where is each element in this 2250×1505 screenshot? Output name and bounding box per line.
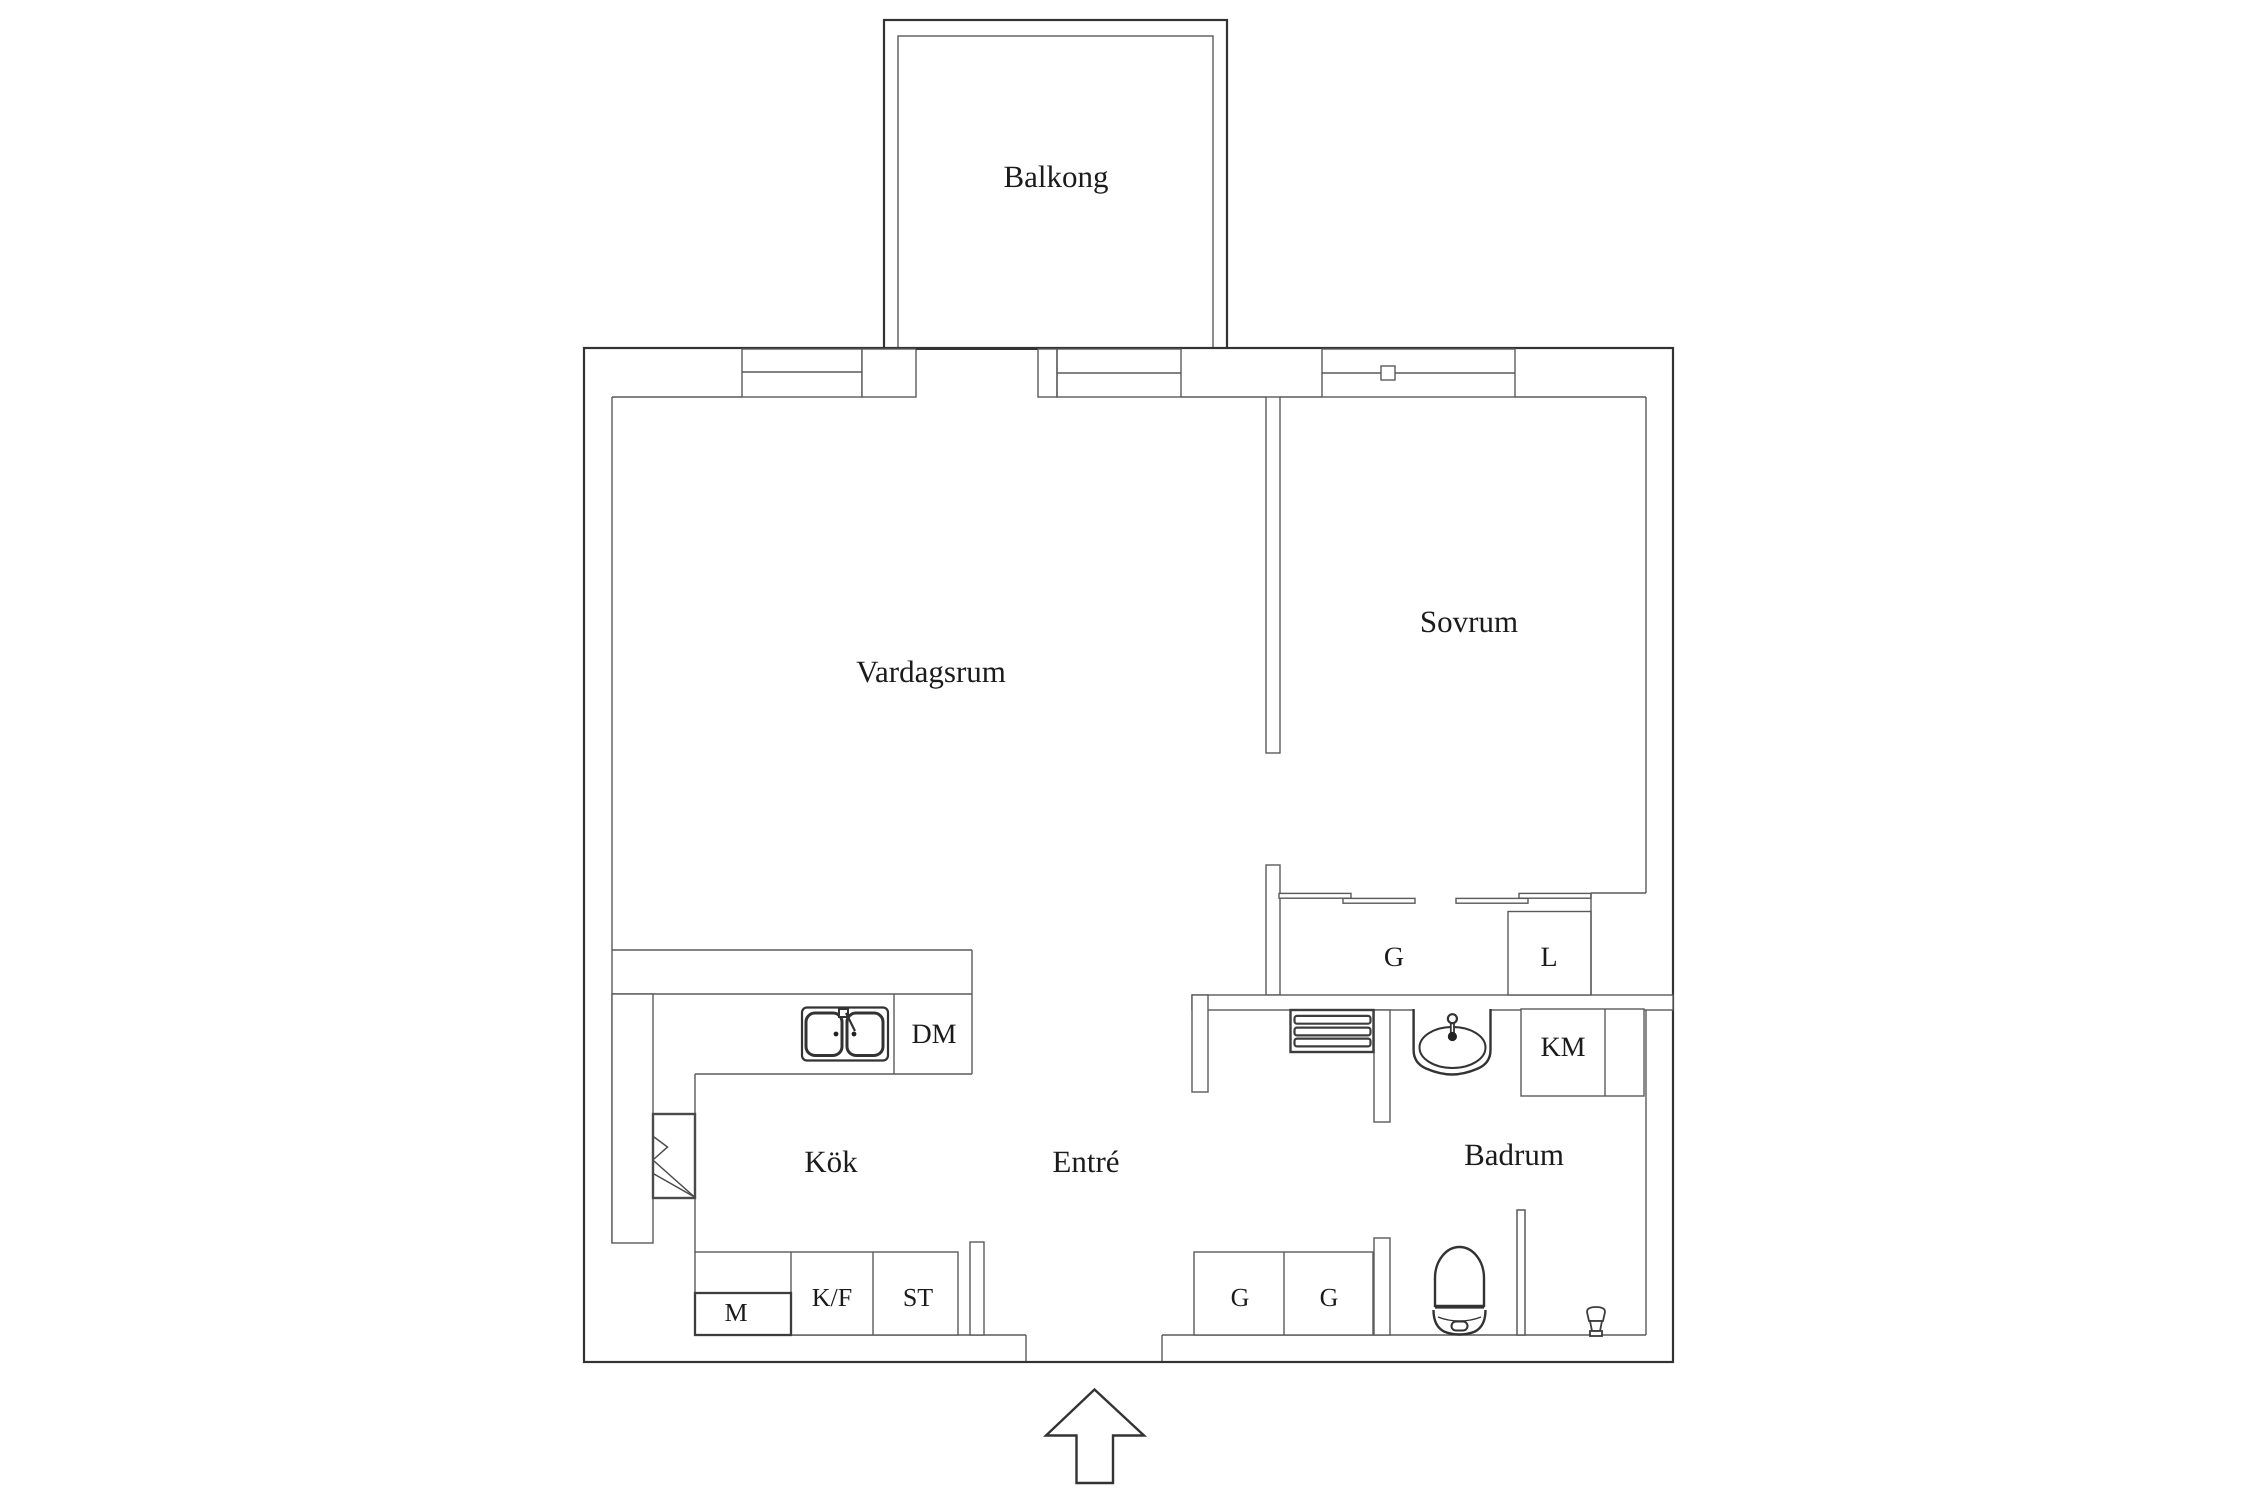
svg-text:Entré: Entré (1052, 1144, 1119, 1179)
svg-text:DM: DM (911, 1019, 956, 1050)
svg-text:M: M (724, 1298, 747, 1327)
svg-text:L: L (1540, 942, 1557, 973)
svg-text:Balkong: Balkong (1003, 159, 1108, 194)
svg-text:ST: ST (903, 1283, 933, 1312)
svg-text:Sovrum: Sovrum (1420, 604, 1518, 639)
svg-text:K/F: K/F (812, 1283, 852, 1312)
svg-text:KM: KM (1540, 1032, 1585, 1063)
svg-text:Kök: Kök (804, 1144, 858, 1179)
svg-text:Badrum: Badrum (1464, 1137, 1564, 1172)
svg-text:Vardagsrum: Vardagsrum (856, 654, 1006, 689)
svg-text:G: G (1231, 1283, 1250, 1312)
svg-text:G: G (1320, 1283, 1339, 1312)
svg-text:G: G (1384, 942, 1404, 973)
